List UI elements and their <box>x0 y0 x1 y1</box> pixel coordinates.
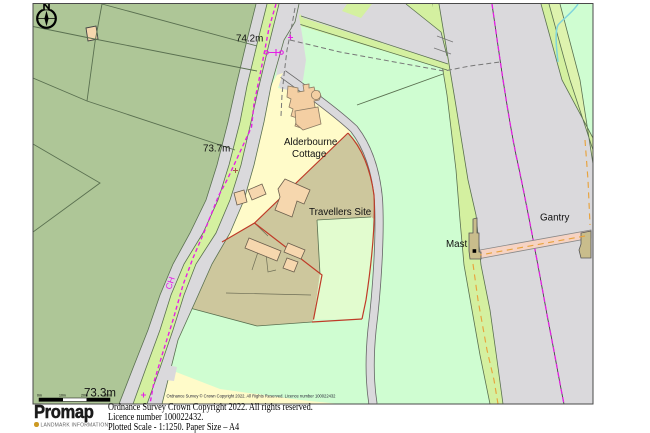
svg-text:Ordnance Survey © Crown Copyri: Ordnance Survey © Crown Copyright 2022. … <box>167 393 337 398</box>
svg-text:20m: 20m <box>81 394 88 398</box>
svg-text:Mast: Mast <box>446 239 468 250</box>
svg-text:73.3m: 73.3m <box>84 388 116 400</box>
svg-text:Gantry: Gantry <box>540 213 570 224</box>
svg-text:Alderbourne: Alderbourne <box>284 137 338 148</box>
svg-text:74.2m: 74.2m <box>236 34 263 45</box>
svg-text:10m: 10m <box>59 394 66 398</box>
svg-text:Cottage: Cottage <box>292 149 327 160</box>
svg-text:30m: 30m <box>104 394 111 398</box>
svg-text:0m: 0m <box>37 394 42 398</box>
svg-text:Travellers Site: Travellers Site <box>309 207 372 218</box>
svg-text:73.7m: 73.7m <box>203 144 230 155</box>
